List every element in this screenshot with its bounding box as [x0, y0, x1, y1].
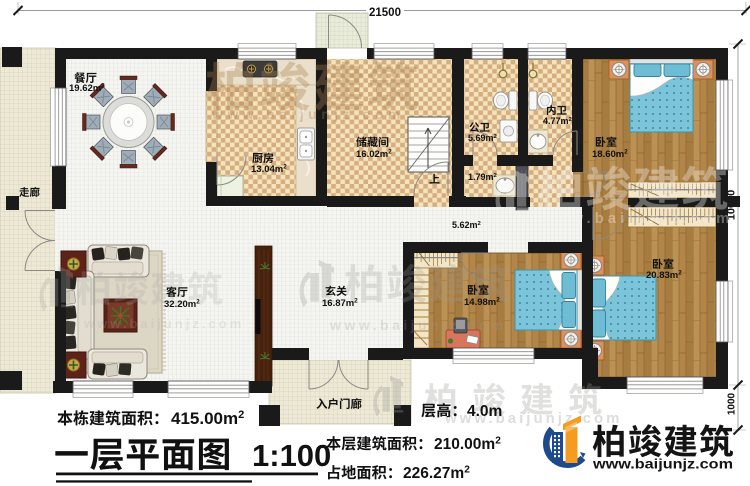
- svg-text:210.00m2: 210.00m2: [434, 436, 501, 453]
- svg-text:5.69m2: 5.69m2: [468, 133, 498, 143]
- svg-text:21500: 21500: [369, 7, 401, 19]
- svg-text:www.baijunjz.com: www.baijunjz.com: [539, 210, 733, 227]
- svg-text:18.60m2: 18.60m2: [592, 149, 628, 160]
- svg-text:16.87m2: 16.87m2: [322, 298, 358, 309]
- svg-text:5.62m2: 5.62m2: [452, 220, 482, 230]
- svg-text:20.83m2: 20.83m2: [646, 270, 682, 281]
- svg-text:19.62m2: 19.62m2: [69, 83, 105, 94]
- svg-text:13.04m2: 13.04m2: [251, 164, 287, 175]
- svg-text:32.20m2: 32.20m2: [164, 299, 200, 310]
- svg-text:www.baijunjz.com: www.baijunjz.com: [329, 317, 507, 333]
- svg-text:www.baijunjz.com: www.baijunjz.com: [211, 106, 405, 122]
- svg-text:1:100: 1:100: [252, 438, 331, 473]
- svg-text:16.02m2: 16.02m2: [356, 149, 392, 160]
- svg-text:4.77m2: 4.77m2: [543, 116, 573, 126]
- svg-text:1.79m2: 1.79m2: [468, 172, 498, 182]
- svg-text:www.baijunjz.com: www.baijunjz.com: [83, 316, 244, 331]
- svg-text:14.98m2: 14.98m2: [464, 297, 500, 308]
- svg-text:www.baijunjz.com: www.baijunjz.com: [592, 457, 733, 472]
- svg-text:226.27m2: 226.27m2: [403, 465, 470, 482]
- svg-text:415.00m2: 415.00m2: [171, 409, 244, 428]
- svg-text:4.0m: 4.0m: [467, 403, 502, 420]
- svg-text:1000: 1000: [727, 392, 738, 415]
